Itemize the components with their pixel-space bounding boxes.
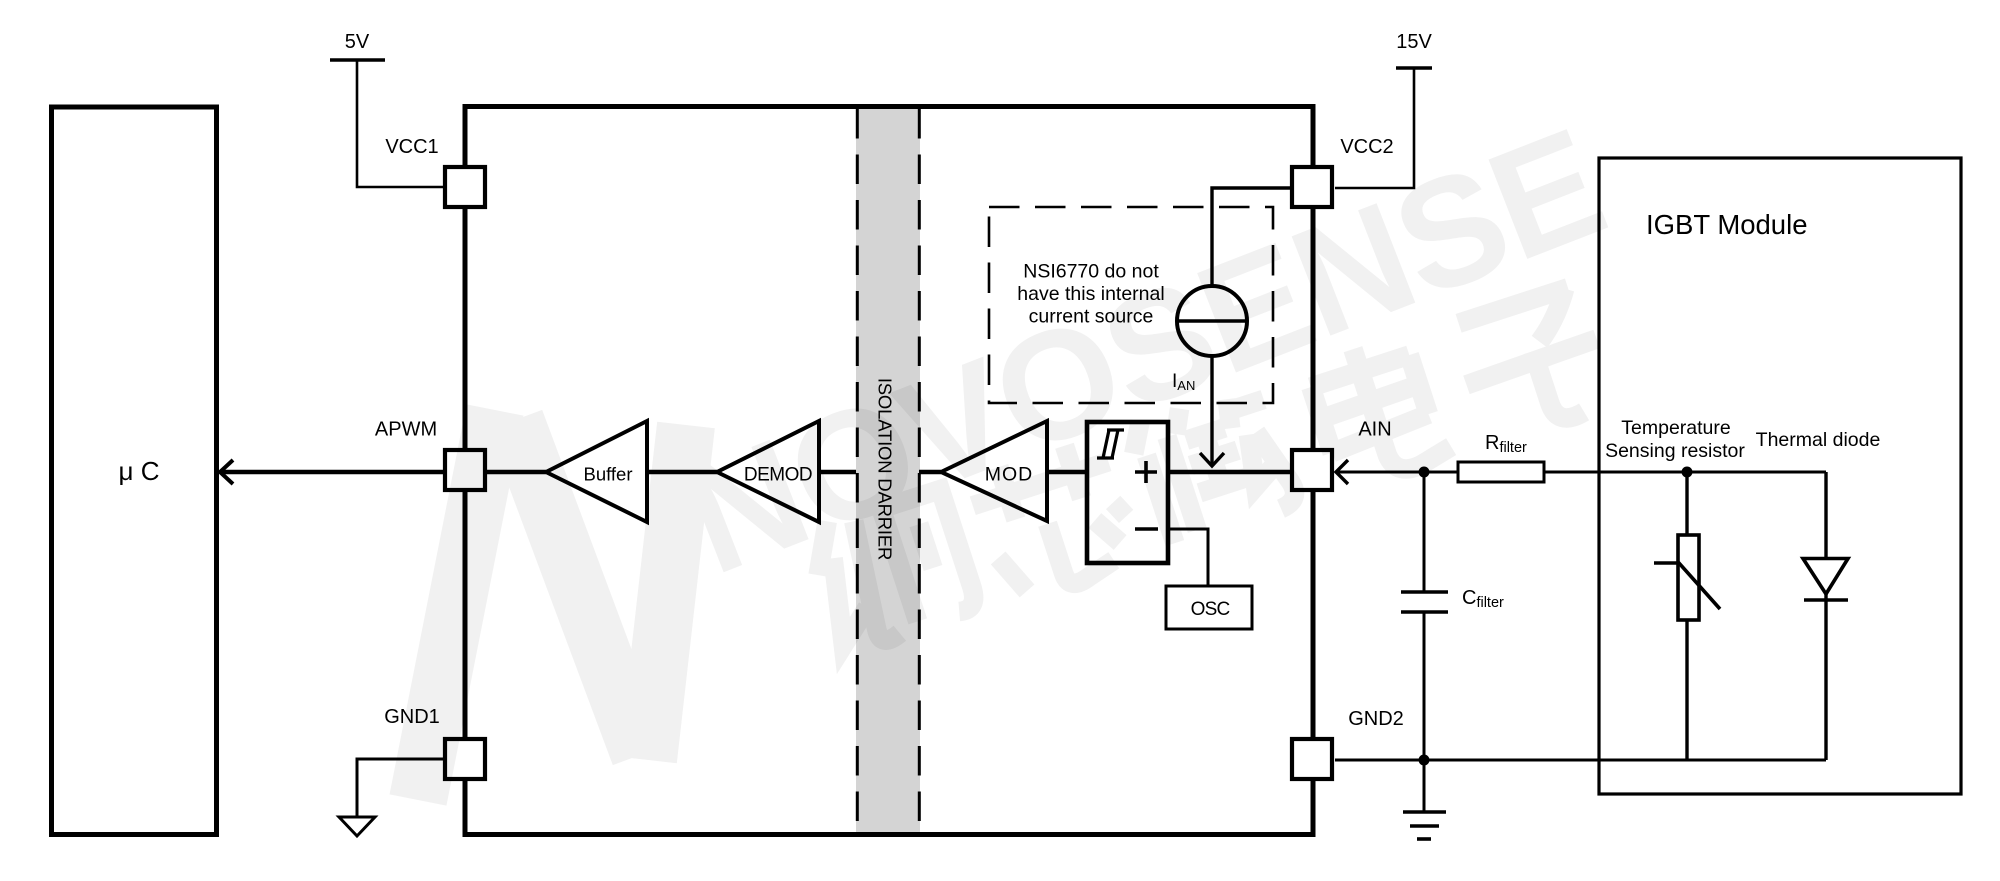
svg-text:Thermal diode: Thermal diode <box>1756 429 1881 451</box>
svg-text:15V: 15V <box>1396 31 1432 53</box>
svg-text:μ C: μ C <box>119 456 160 486</box>
svg-text:5V: 5V <box>345 31 370 53</box>
svg-text:Buffer: Buffer <box>583 464 632 485</box>
svg-text:IGBT Module: IGBT Module <box>1646 209 1808 240</box>
svg-text:APWM: APWM <box>375 419 437 441</box>
svg-text:OSC: OSC <box>1191 599 1230 620</box>
svg-text:GND2: GND2 <box>1348 708 1404 730</box>
svg-text:Temperature: Temperature <box>1621 417 1730 439</box>
svg-text:VCC1: VCC1 <box>385 136 438 158</box>
svg-text:Sensing resistor: Sensing resistor <box>1605 440 1745 462</box>
svg-text:VCC2: VCC2 <box>1340 136 1393 158</box>
